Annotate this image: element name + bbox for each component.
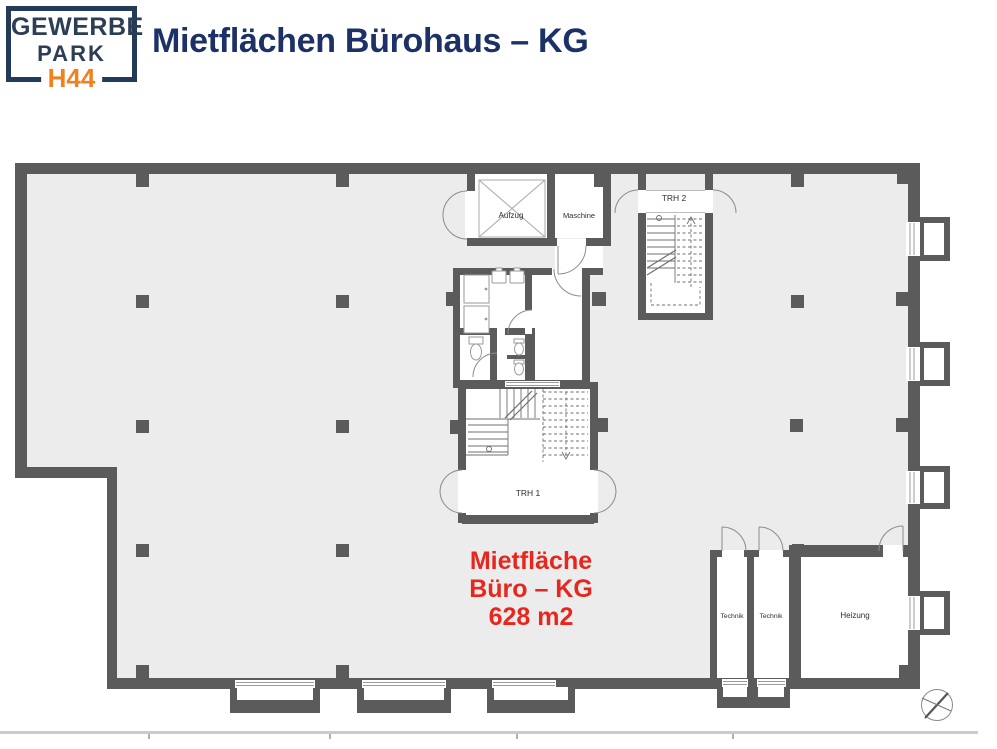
room-label-technik1: Technik [720, 613, 744, 620]
room-label-trh1: TRH 1 [516, 488, 541, 498]
room-label-heizung: Heizung [840, 611, 869, 620]
elevator-symbol [479, 180, 545, 237]
north-arrow-icon [922, 690, 953, 721]
room-label-maschine: Maschine [563, 211, 595, 220]
bottom-divider [0, 731, 978, 739]
page: GEWERBE PARK H44 Mietflächen Bürohaus – … [0, 0, 997, 749]
rental-area-line3: 628 m2 [489, 603, 574, 631]
rental-area-line2: Büro – KG [469, 575, 593, 603]
rental-area-line1: Mietfläche [470, 547, 592, 575]
room-label-aufzug: Aufzug [499, 211, 524, 220]
room-label-trh2: TRH 2 [662, 193, 687, 203]
floor-plan: Aufzug Maschine TRH 2 TRH 1 Technik Tech… [0, 0, 997, 749]
room-label-technik2: Technik [759, 613, 783, 620]
